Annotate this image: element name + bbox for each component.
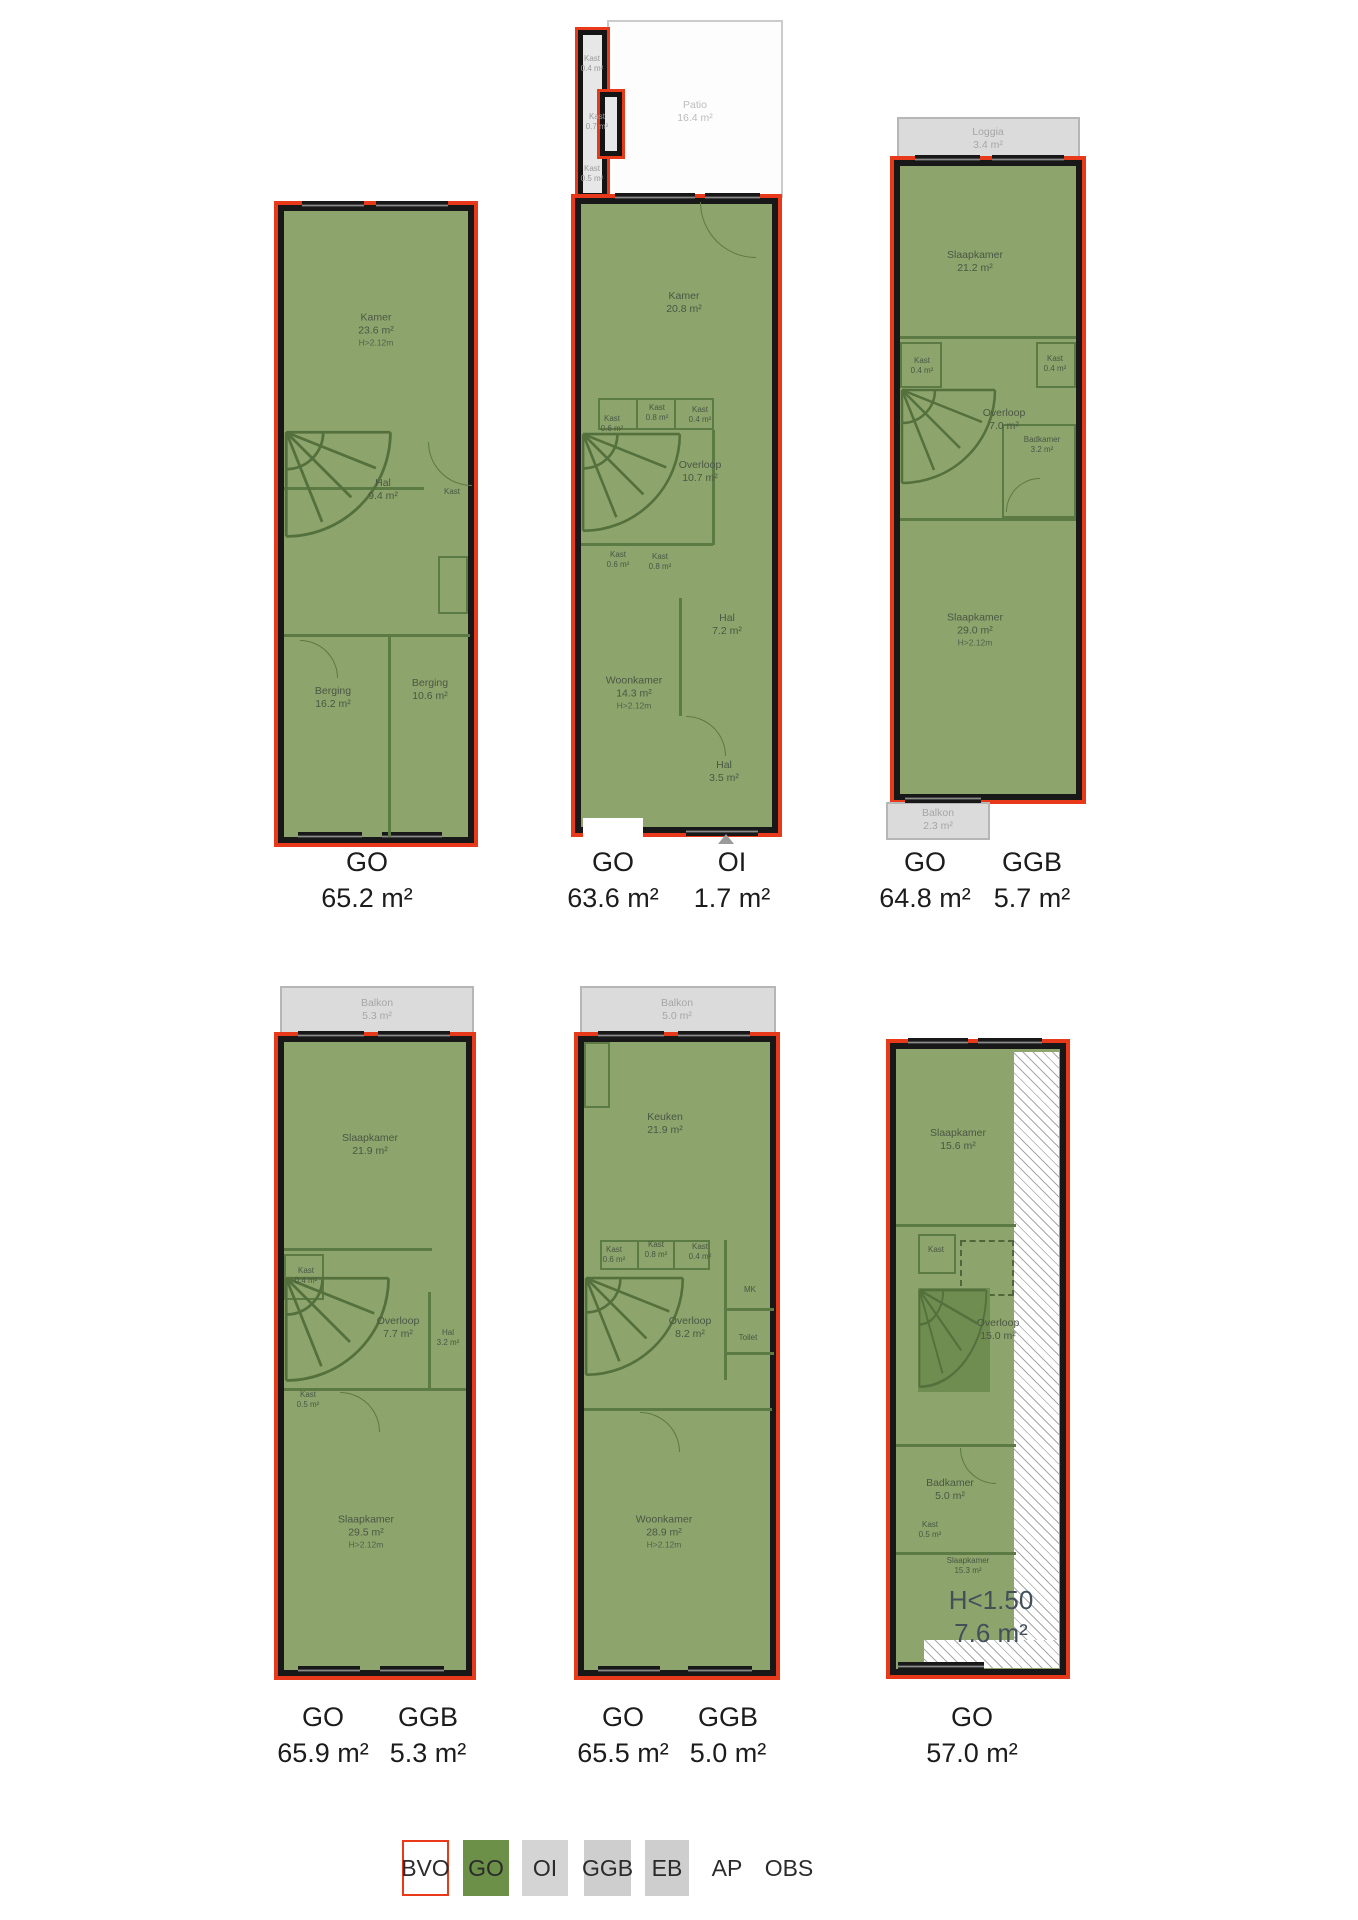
legend-swatch-oi: OI <box>522 1840 568 1896</box>
wall-line <box>584 1408 772 1411</box>
wall-line <box>896 1224 1016 1227</box>
area-total-oi-2: OI1.7 m² <box>642 845 822 916</box>
window-bar <box>298 832 362 841</box>
room-label: Kast0.4 m² <box>689 405 712 425</box>
wall-line <box>581 543 713 546</box>
room-label: Woonkamer28.9 m² H>2.12m <box>636 1514 692 1551</box>
legend-item-obs: OBS <box>758 1840 820 1896</box>
area-total-ggb-4: GGB5.3 m² <box>338 1700 518 1771</box>
window-bar <box>905 794 981 803</box>
window-bar <box>615 193 695 202</box>
floorplan-sheet: Kamer23.6 m² H>2.12m Hal9.4 m² Kast Berg… <box>0 0 1358 1920</box>
window-bar <box>302 201 364 210</box>
room-label: Kamer23.6 m² H>2.12m <box>358 312 394 349</box>
excluded-notch <box>583 818 643 839</box>
room-label: Kast0.4 m² <box>911 356 934 376</box>
room-label: Berging10.6 m² <box>412 677 448 703</box>
room-label: Slaapkamer29.0 m² H>2.12m <box>947 612 1003 649</box>
room-label: Berging16.2 m² <box>315 685 351 711</box>
balcony-label: Balkon5.0 m² <box>661 997 693 1023</box>
room-label: Overloop7.7 m² <box>377 1315 420 1341</box>
window-bar <box>678 1031 750 1040</box>
room-label: Kast0.8 m² <box>646 403 669 423</box>
patio-label: Patio16.4 m² <box>677 99 713 125</box>
legend-label-bvo: BVO <box>401 1855 450 1882</box>
room-label: Kast0.4 m² <box>1044 354 1067 374</box>
room-label: Overloop8.2 m² <box>669 1315 712 1341</box>
legend-swatch-bvo: BVO <box>402 1840 449 1896</box>
room-label: Overloop15.0 m² <box>977 1317 1020 1343</box>
room-label: Kast0.6 m² <box>601 414 624 434</box>
room-label: Slaapkamer29.5 m² H>2.12m <box>338 1514 394 1551</box>
wall-line <box>679 598 682 716</box>
room-label: Kast0.8 m² <box>649 552 672 572</box>
balcony-label: Balkon2.3 m² <box>922 807 954 833</box>
window-bar <box>598 1031 664 1040</box>
wall-line <box>896 1444 1016 1447</box>
room-label: Badkamer5.0 m² <box>926 1477 974 1503</box>
room-label: Woonkamer14.3 m² H>2.12m <box>606 675 662 712</box>
room-label: Slaapkamer21.2 m² <box>947 249 1003 275</box>
room-label: Badkamer3.2 m² <box>1024 435 1060 455</box>
room-label: Kast0.4 m² <box>689 1242 712 1262</box>
room-label: Slaapkamer15.6 m² <box>930 1127 986 1153</box>
wall-line <box>388 637 391 837</box>
legend-label-ap: AP <box>712 1855 743 1882</box>
room-label: Kast0.5 m² <box>297 1390 320 1410</box>
room-label: Hal3.5 m² <box>709 759 739 785</box>
room-label: Toilet <box>739 1333 758 1343</box>
wall-line <box>284 634 470 637</box>
window-bar <box>298 1666 360 1675</box>
wall-line <box>900 336 1076 339</box>
window-bar <box>992 155 1064 164</box>
window-bar <box>382 832 442 841</box>
legend-swatch-go: GO <box>463 1840 509 1896</box>
room-label: MK <box>744 1285 756 1295</box>
room-label: Kast0.8 m² <box>645 1240 668 1260</box>
height-note: H<1.507.6 m² <box>949 1584 1034 1649</box>
room-label: Hal3.2 m² <box>437 1328 460 1348</box>
room-label: Kast <box>928 1245 944 1255</box>
area-total-go-1: GO65.2 m² <box>277 845 457 916</box>
room-label: Overloop7.0 m² <box>983 407 1026 433</box>
room-label: Kast0.5 m² <box>581 164 604 184</box>
window-bar <box>978 1038 1042 1047</box>
room-label: Kast0.4 m² <box>581 54 604 74</box>
wall-line <box>724 1352 774 1355</box>
room-label: Overloop10.7 m² <box>679 459 722 485</box>
wall-line <box>636 398 638 430</box>
room-label: Kast0.6 m² <box>607 550 630 570</box>
wall-line <box>284 1248 432 1251</box>
wall-line <box>724 1308 774 1311</box>
legend-swatch-eb: EB <box>645 1840 689 1896</box>
area-total-ggb-3: GGB5.7 m² <box>942 845 1122 916</box>
room-label: Keuken21.9 m² <box>647 1111 683 1137</box>
spiral-stair-icon <box>900 388 1000 488</box>
legend-label-ggb: GGB <box>582 1855 633 1882</box>
room-label: Slaapkamer15.3 m² <box>947 1556 990 1576</box>
area-total-go-6: GO57.0 m² <box>882 1700 1062 1771</box>
wall-line <box>674 398 676 430</box>
legend-swatch-ggb: GGB <box>584 1840 631 1896</box>
room-label: Slaapkamer21.9 m² <box>342 1132 398 1158</box>
legend-label-obs: OBS <box>765 1855 814 1882</box>
window-bar <box>378 1031 450 1040</box>
spiral-stair-icon <box>581 432 685 536</box>
window-bar <box>915 155 980 164</box>
window-bar <box>380 1666 444 1675</box>
kitchen-counter <box>438 556 468 614</box>
window-bar <box>376 201 448 210</box>
room-label: Kast0.4 m² <box>295 1266 318 1286</box>
kitchen-counter <box>584 1042 610 1108</box>
balcony-label: Balkon5.3 m² <box>361 997 393 1023</box>
room-label: Kast0.6 m² <box>603 1245 626 1265</box>
window-bar <box>598 1666 660 1675</box>
wall-line <box>673 1240 675 1270</box>
wall-line <box>712 430 715 545</box>
oi-pointer-icon <box>718 834 734 844</box>
room-label: Kast0.7 m² <box>586 112 609 132</box>
wall-line <box>900 518 1076 521</box>
wall-line <box>896 1552 1016 1555</box>
room-label: Kast0.5 m² <box>919 1520 942 1540</box>
window-bar <box>908 1038 968 1047</box>
room-label: Hal7.2 m² <box>712 612 742 638</box>
window-bar <box>298 1031 364 1040</box>
legend-item-ap: AP <box>702 1840 752 1896</box>
wall-line <box>428 1292 431 1388</box>
room-label: Kamer20.8 m² <box>666 290 702 316</box>
loggia-label: Loggia3.4 m² <box>972 126 1004 152</box>
legend-label-go: GO <box>468 1855 504 1882</box>
area-total-ggb-5: GGB5.0 m² <box>638 1700 818 1771</box>
wall-line <box>637 1240 639 1270</box>
low-height-hatch <box>1014 1052 1059 1666</box>
window-bar <box>705 193 760 202</box>
legend-label-eb: EB <box>652 1855 683 1882</box>
room-label: Hal9.4 m² <box>368 477 398 503</box>
legend-label-oi: OI <box>533 1855 557 1882</box>
window-bar <box>898 1662 984 1671</box>
window-bar <box>688 1666 752 1675</box>
room-label: Kast <box>444 487 460 497</box>
